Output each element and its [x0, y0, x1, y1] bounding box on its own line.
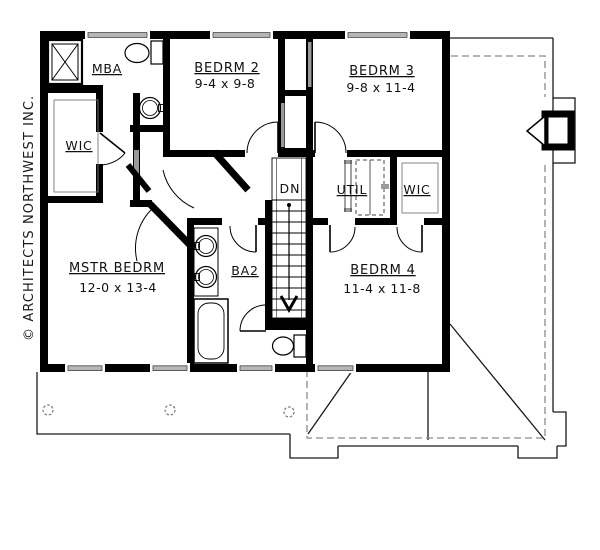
window	[210, 30, 273, 40]
room-label-mba: MBA	[92, 61, 122, 76]
sink-icon	[140, 98, 164, 119]
room-label-ba2: BA2	[231, 263, 258, 278]
room-dims-bedrm4: 11-4 x 11-8	[343, 281, 421, 296]
room-dims-mstr: 12-0 x 13-4	[79, 280, 157, 295]
room-label-bedrm3: BEDRM 3	[349, 64, 414, 79]
floor-plan-drawing: MBA WIC BEDRM 2 9-4 x 9-8 BEDRM 3 9-8 x …	[0, 0, 600, 550]
roof-outline	[290, 38, 566, 458]
room-labels: MBA WIC BEDRM 2 9-4 x 9-8 BEDRM 3 9-8 x …	[65, 61, 430, 296]
room-label-bedrm2: BEDRM 2	[194, 61, 259, 76]
room-label-wic-right: WIC	[403, 182, 430, 197]
window	[315, 363, 356, 373]
stairs-dn-label: DN	[280, 181, 301, 196]
toilet-icon	[125, 41, 163, 64]
room-label-bedrm4: BEDRM 4	[350, 263, 415, 278]
chimney	[527, 98, 575, 163]
toilet-icon	[273, 335, 307, 357]
vanity-double-sink	[194, 228, 218, 296]
room-label-mstr: MSTR BEDRM	[69, 261, 165, 276]
window	[150, 363, 190, 373]
window	[237, 363, 275, 373]
window	[65, 363, 105, 373]
stairs-down-arrow	[281, 203, 297, 310]
shower-icon	[48, 40, 82, 84]
room-dims-bedrm2: 9-4 x 9-8	[195, 76, 256, 91]
porch	[37, 372, 294, 434]
window	[345, 30, 410, 40]
copyright-text: © ARCHITECTS NORTHWEST INC.	[22, 95, 37, 341]
room-dims-bedrm3: 9-8 x 11-4	[346, 80, 415, 95]
bathtub-icon	[194, 299, 228, 363]
porch-post	[284, 407, 294, 417]
porch-post	[165, 405, 175, 415]
floor-plan-page: MBA WIC BEDRM 2 9-4 x 9-8 BEDRM 3 9-8 x …	[0, 0, 600, 550]
window	[85, 30, 150, 40]
porch-post	[43, 405, 53, 415]
room-label-wic-left: WIC	[65, 138, 92, 153]
room-label-util: UTIL	[337, 182, 368, 197]
